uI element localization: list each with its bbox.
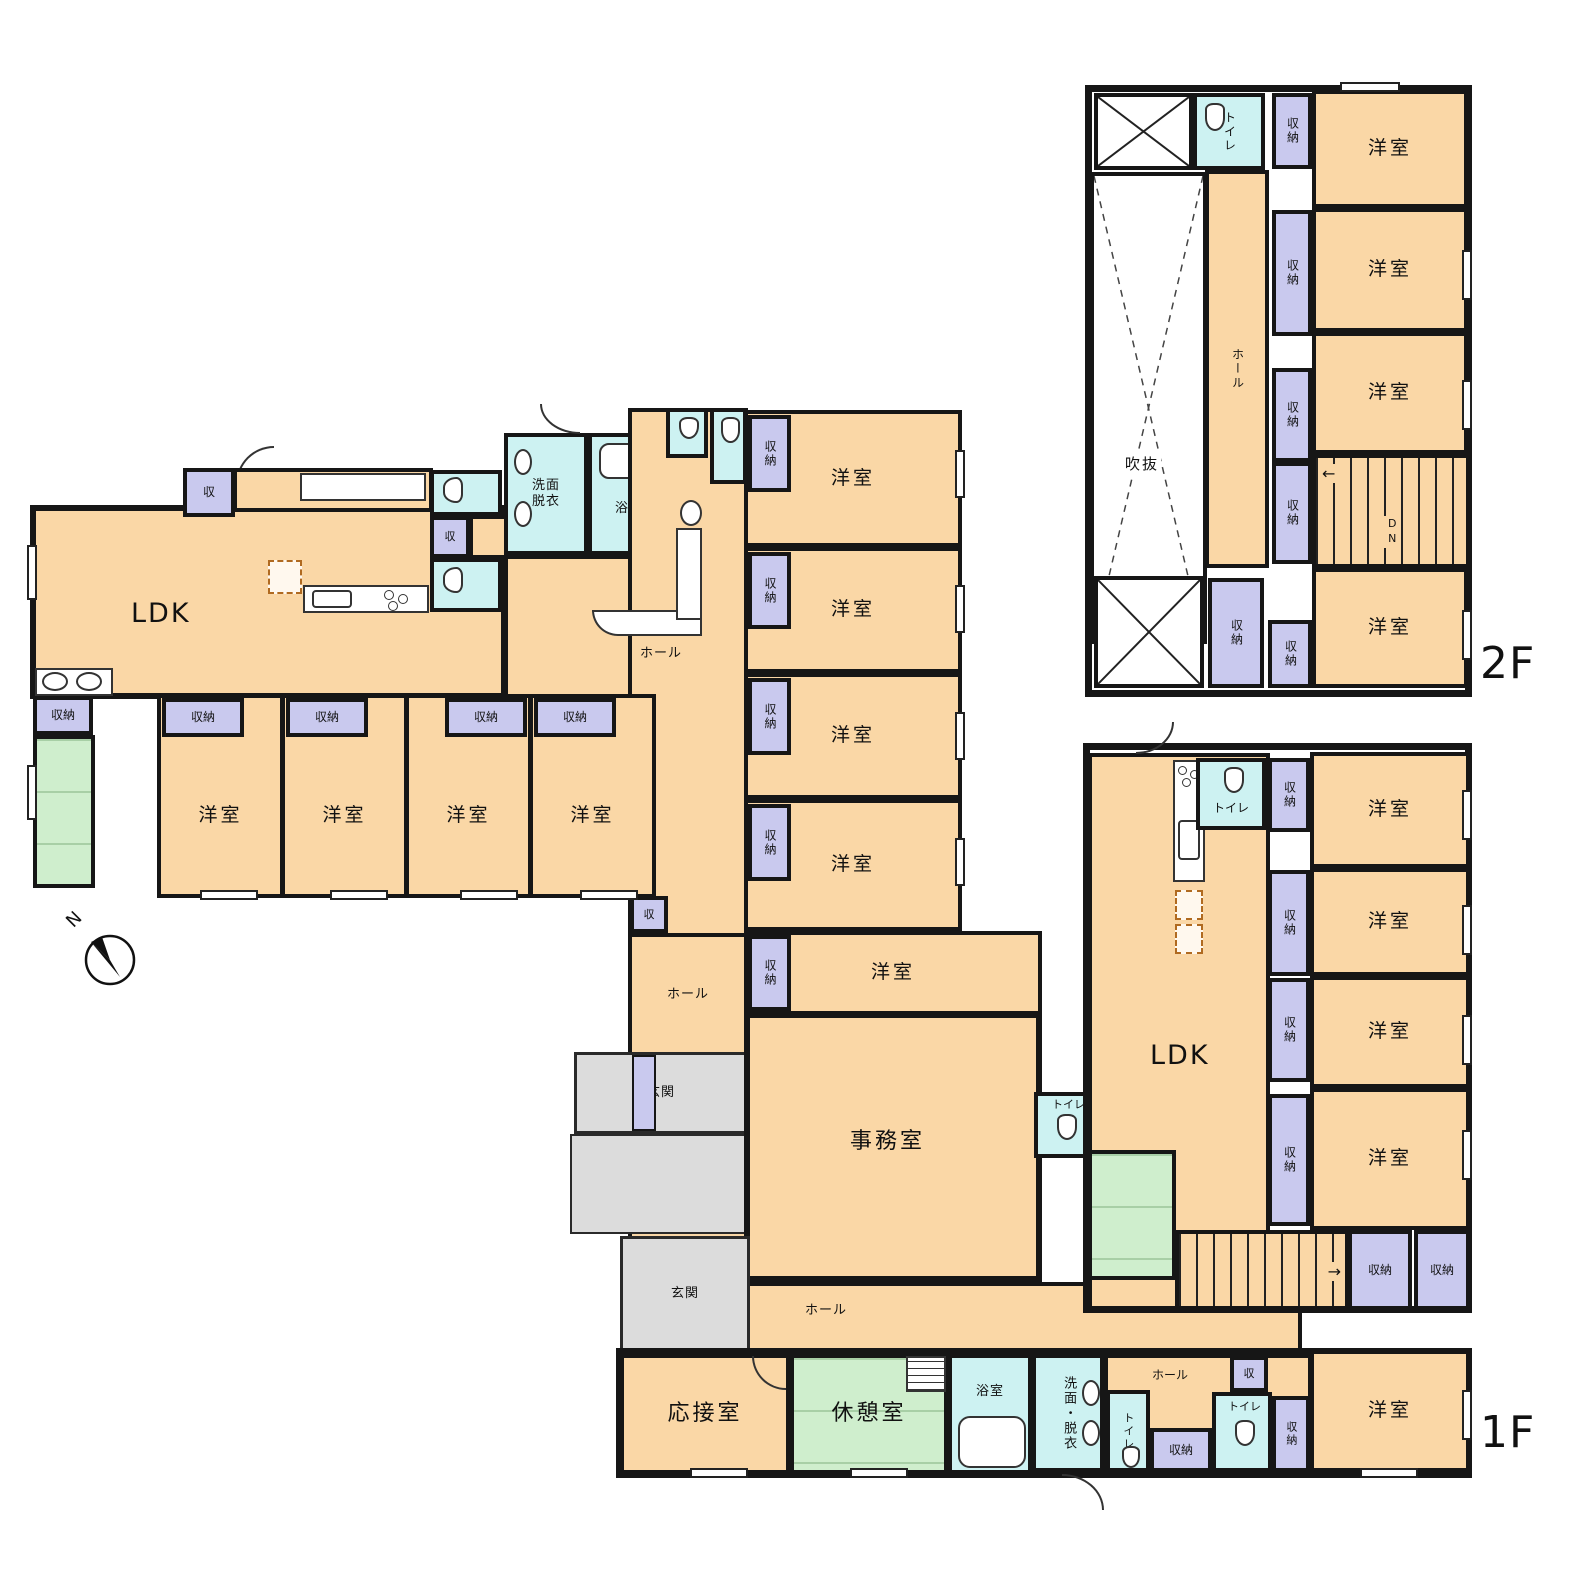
window-mark: [1462, 380, 1472, 430]
room-1f-right-1: 洋室: [1310, 752, 1470, 868]
toilet-room-top-b: [710, 408, 747, 484]
toilet-room-2f: トイレ: [1193, 93, 1265, 170]
staircase-2f: ← DN: [1312, 454, 1470, 568]
closet-2f-2: 収納: [1272, 210, 1312, 336]
door-arc: [1062, 1474, 1104, 1510]
closet-1f-center-4: 収納: [748, 804, 791, 881]
compass-north-icon: N: [60, 905, 150, 995]
window-mark: [1462, 1130, 1472, 1180]
closet-1f-right-3: 収納: [1268, 978, 1310, 1082]
window-mark: [1462, 610, 1472, 660]
entrance-porch-upper: [570, 1134, 750, 1234]
window-mark: [850, 1468, 908, 1478]
stove-burner-icon: [388, 601, 398, 611]
window-mark: [955, 450, 965, 498]
hall-2f: ホール: [1205, 170, 1269, 568]
closet-1f-center-5: 収納: [748, 935, 791, 1011]
washbasin-icon: [514, 449, 532, 475]
elevator-shaft-lower: [1094, 576, 1204, 688]
closet-1f-right-1: 収納: [1268, 758, 1310, 832]
bathroom-bottom: 浴室: [948, 1354, 1032, 1474]
toilet-icon: [679, 417, 699, 439]
elevator-shaft: [1094, 93, 1193, 170]
stove-burner-icon: [1178, 766, 1187, 775]
kitchen-hatch: [268, 560, 302, 594]
closet-1f-center-3: 収納: [748, 678, 791, 755]
closet-bottom-a: 収納: [1150, 1428, 1212, 1472]
tatami-right: [1088, 1150, 1176, 1280]
entrance-lower: 玄関: [620, 1236, 750, 1352]
entrance-closet-strip: [632, 1055, 656, 1131]
closet-1f-left-1: 収納: [162, 698, 244, 737]
closet-hall-small: 収: [630, 896, 668, 933]
closet-stairs-b: 収納: [1414, 1230, 1470, 1310]
stove-burner-icon: [398, 594, 408, 604]
washbasin-icon: [76, 672, 102, 691]
hall-bottom-label: ホール: [805, 1303, 847, 1319]
floor-label-1f: 1F: [1480, 1405, 1535, 1460]
toilet-icon: [1205, 103, 1225, 131]
toilet-right-wing: トイレ: [1196, 758, 1266, 830]
toilet-bottom-left: トイレ: [1106, 1390, 1150, 1472]
window-mark: [1462, 905, 1472, 955]
window-mark: [460, 890, 518, 900]
toilet-icon: [1224, 767, 1244, 793]
washroom-bottom: 洗面・脱衣: [1032, 1354, 1104, 1472]
toilet-icon: [1057, 1114, 1077, 1140]
window-mark: [1462, 1390, 1472, 1440]
kitchen-counter: [300, 473, 426, 501]
closet-1f-left-4: 収納: [534, 698, 616, 737]
closet-2f-big: 収納: [1208, 578, 1264, 688]
washbasin-icon: [1082, 1420, 1100, 1446]
reception-counter: [676, 528, 702, 620]
kitchen-hatch: [1175, 890, 1203, 920]
toilet-room-small-b: [430, 558, 502, 612]
room-2f-western-1: 洋室: [1312, 90, 1468, 208]
void-label: 吹抜: [1123, 454, 1161, 475]
closet-hall-mid: 収: [430, 516, 470, 558]
hall-left-label: ホール: [640, 646, 682, 662]
window-mark: [27, 765, 37, 820]
closet-stairs-a: 収納: [1348, 1230, 1412, 1310]
toilet-icon: [443, 477, 463, 503]
room-1f-right-3: 洋室: [1310, 976, 1470, 1088]
toilet-icon: [1122, 1446, 1140, 1468]
closet-2f-1: 収納: [1272, 93, 1312, 169]
closet-ldk-entry: 収: [183, 468, 235, 517]
stove-burner-icon: [384, 590, 394, 600]
room-1f-right-4: 洋室: [1310, 1088, 1470, 1230]
window-mark: [1462, 1015, 1472, 1065]
room-2f-western-2: 洋室: [1312, 208, 1468, 332]
closet-1f-right-4: 収納: [1268, 1094, 1310, 1226]
room-2f-western-4: 洋室: [1312, 568, 1468, 688]
void-atrium: 吹抜: [1090, 172, 1207, 644]
window-mark: [1462, 790, 1472, 840]
toilet-icon: [1235, 1420, 1255, 1446]
closet-1f-center-1: 収納: [748, 415, 791, 492]
washroom-left: 洗面脱衣: [504, 433, 588, 555]
window-mark: [330, 890, 388, 900]
hall-gap: [470, 516, 507, 558]
hall-bottom-right-label: ホール: [1152, 1368, 1188, 1383]
room-1f-bottom: 洋室: [1310, 1350, 1470, 1472]
window-mark: [955, 838, 965, 886]
window-mark: [580, 890, 638, 900]
window-mark: [1340, 82, 1400, 92]
window-mark: [955, 585, 965, 633]
toilet-icon: [443, 567, 463, 593]
closet-2f-3: 収納: [1272, 368, 1312, 462]
door-arc: [540, 404, 580, 434]
office-room: 事務室: [744, 1012, 1042, 1282]
closet-left-row: 収納: [33, 696, 93, 735]
toilet-room-small-a: [430, 470, 502, 516]
stove-burner-icon: [1182, 778, 1191, 787]
kitchen-hatch: [1175, 924, 1203, 954]
window-mark: [690, 1468, 748, 1478]
hall-small: ホール: [628, 933, 748, 1057]
room-2f-western-3: 洋室: [1312, 332, 1468, 454]
stairs-dn-label: DN: [1384, 516, 1400, 548]
door-arc: [1136, 722, 1174, 754]
window-mark: [1462, 250, 1472, 300]
sink-icon: [312, 590, 352, 608]
window-mark: [955, 712, 965, 760]
window-mark: [200, 890, 258, 900]
washbasin-icon: [514, 501, 532, 527]
closet-1f-left-2: 収納: [286, 698, 368, 737]
toilet-icon: [721, 417, 740, 443]
closet-bottom-vert: 収納: [1272, 1396, 1310, 1472]
toilet-room-top-a: [666, 408, 708, 458]
basin-icon: [680, 500, 702, 526]
ldk-left-label: LDK: [131, 597, 191, 631]
closet-bottom-mini: 収: [1230, 1356, 1268, 1392]
washbasin-icon: [1082, 1380, 1100, 1406]
floor-plan: トイレ 収納 洋室 吹抜 ホール 収納 洋室 収納 洋室 収納 ← DN 収納 …: [0, 0, 1569, 1569]
washbasin-icon: [42, 672, 68, 691]
window-mark: [1360, 1468, 1418, 1478]
floor-label-2f: 2F: [1480, 636, 1535, 691]
stair-hatch: [906, 1356, 946, 1392]
window-mark: [27, 545, 37, 600]
ldk-right-label: LDK: [1150, 1039, 1210, 1073]
stairs-arrow-icon: ←: [1322, 464, 1335, 483]
closet-2f-stairs: 収納: [1272, 462, 1312, 564]
entrance-upper: 玄関: [574, 1052, 748, 1134]
tatami-left: [33, 735, 95, 888]
stairs-arrow-icon: →: [1328, 1262, 1341, 1281]
closet-1f-center-2: 収納: [748, 552, 791, 629]
room-1f-right-2: 洋室: [1310, 868, 1470, 976]
bathtub-icon: [958, 1416, 1026, 1468]
toilet-bottom-right: トイレ: [1212, 1392, 1272, 1472]
closet-1f-right-2: 収納: [1268, 870, 1310, 976]
staircase-1f: →: [1175, 1230, 1349, 1310]
office-label: 事務室: [850, 1128, 925, 1156]
office-toilet: トイレ: [1034, 1092, 1092, 1158]
closet-2f-4: 収納: [1268, 620, 1312, 688]
closet-1f-left-3: 収納: [445, 698, 527, 737]
